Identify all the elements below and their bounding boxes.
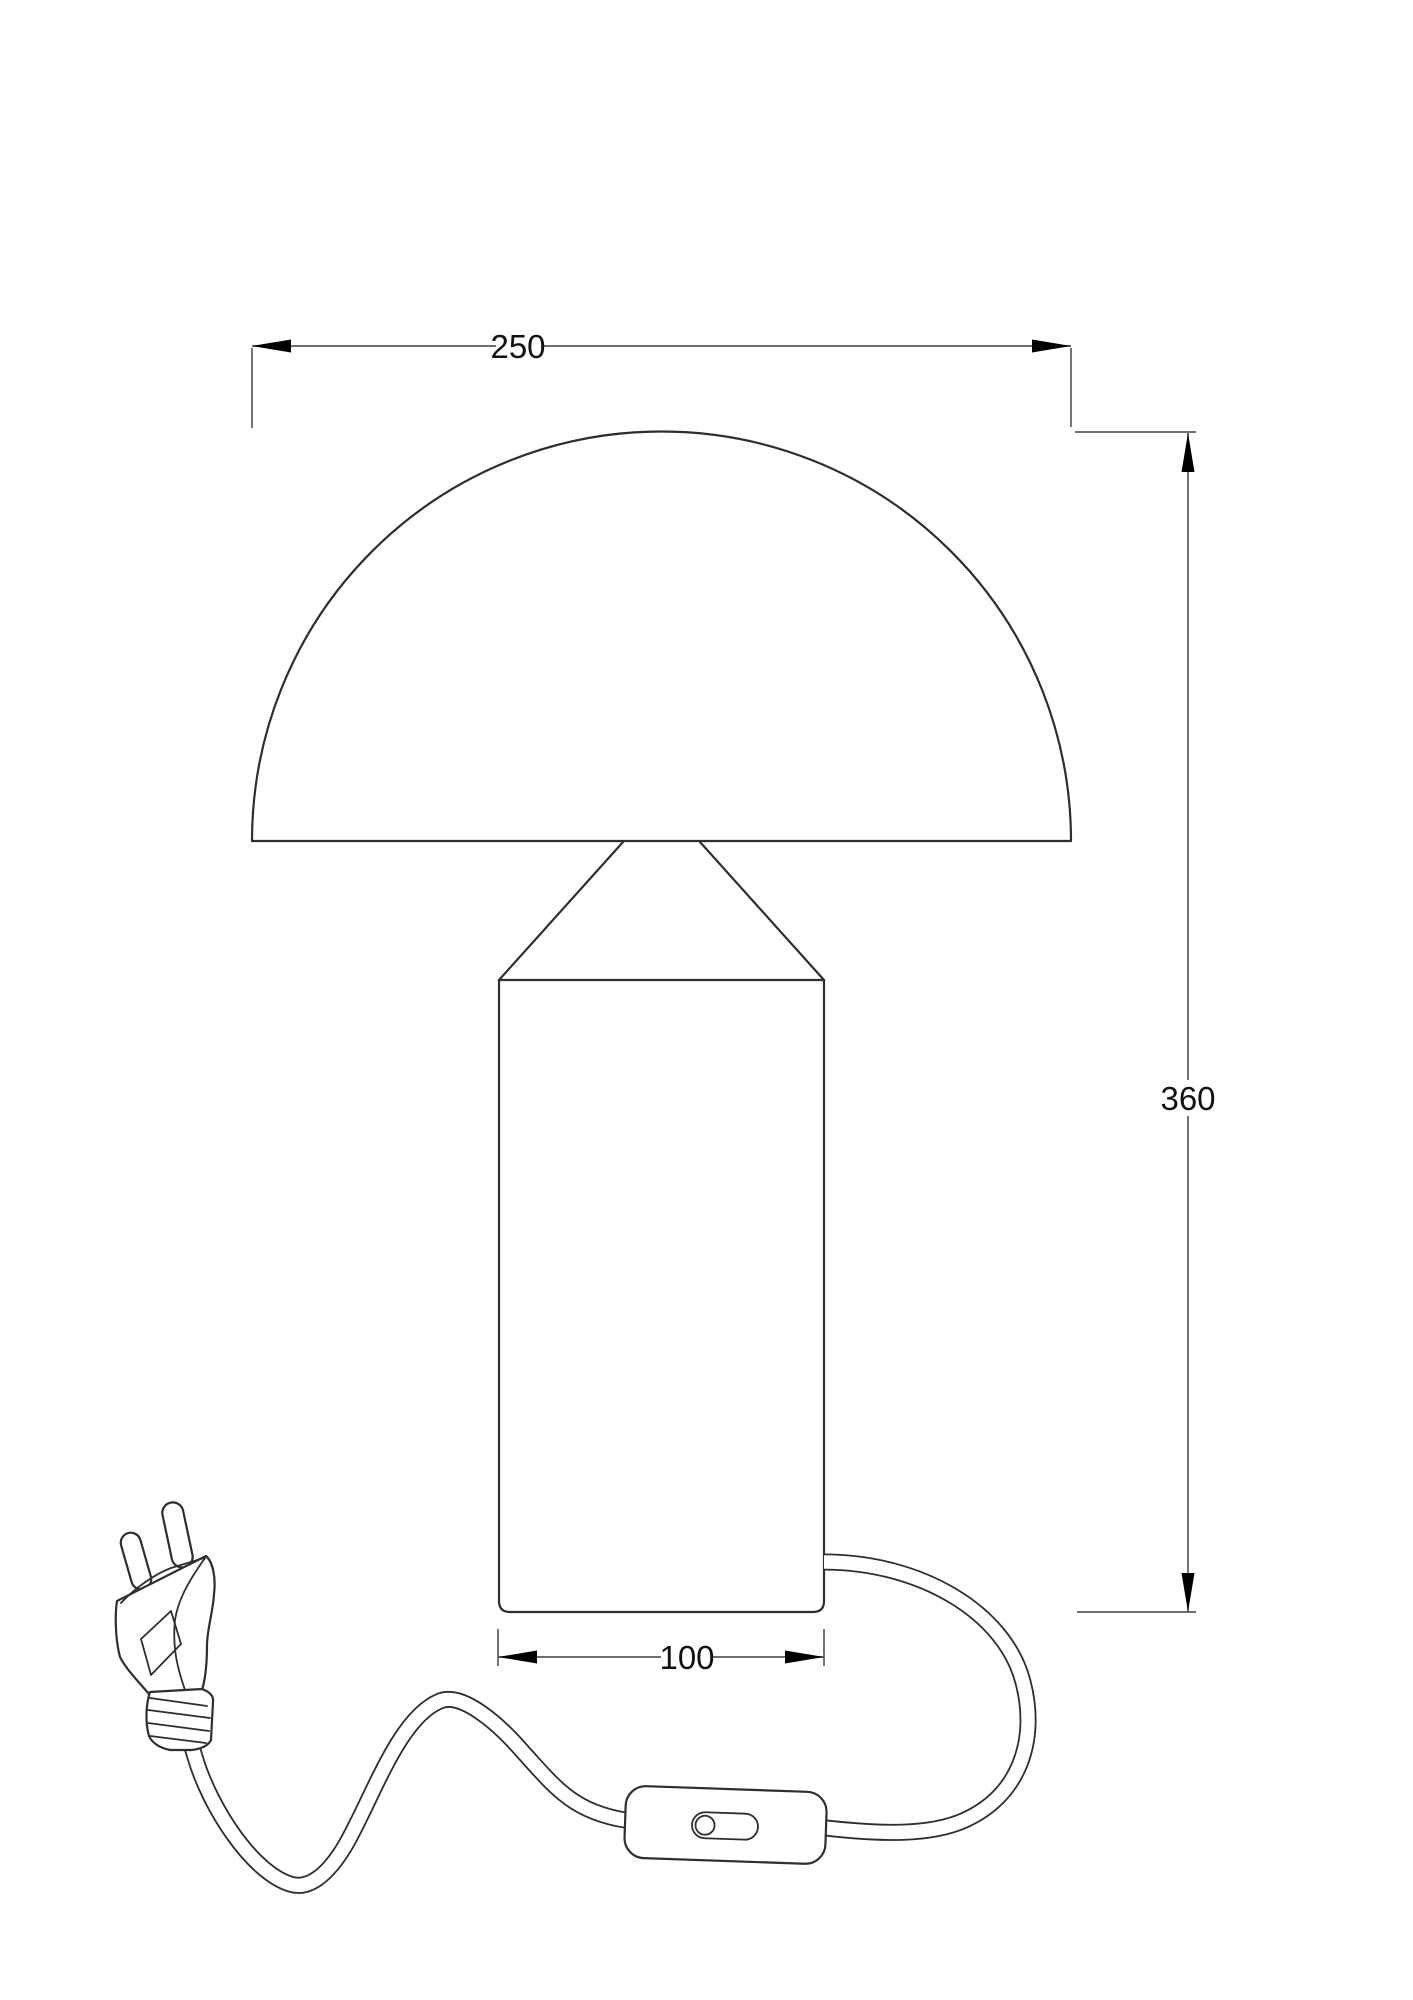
dimension-base-width: 100 [498, 1629, 824, 1676]
lamp-dimension-diagram: 250 360 100 [0, 0, 1413, 2000]
dimension-top-width: 250 [252, 328, 1071, 428]
dimension-label-base: 100 [659, 1639, 714, 1676]
arrowhead-left [252, 340, 291, 353]
table-lamp [252, 432, 1071, 1613]
arrowhead-left [498, 1651, 537, 1664]
lamp-body-cylinder [499, 980, 824, 1612]
arrowhead-right [1032, 340, 1071, 353]
switch-body [624, 1785, 827, 1864]
arrowhead-up [1182, 433, 1195, 472]
dimension-label-height: 360 [1160, 1080, 1215, 1117]
lamp-shade-dome [252, 432, 1071, 842]
plug-pin-right [160, 1500, 194, 1569]
arrowhead-right [785, 1651, 824, 1664]
power-cord-loop [824, 1562, 1028, 1832]
inline-cord-switch [624, 1785, 827, 1864]
power-plug [116, 1500, 215, 1750]
power-cord-left [185, 1699, 640, 1885]
technical-drawing-page: 250 360 100 [0, 0, 1413, 2000]
plug-pin-left [118, 1530, 153, 1591]
dimension-right-height: 360 [1075, 432, 1216, 1612]
lamp-neck-cone [499, 842, 824, 980]
dimension-label-width: 250 [490, 328, 545, 365]
arrowhead-down [1182, 1573, 1195, 1612]
